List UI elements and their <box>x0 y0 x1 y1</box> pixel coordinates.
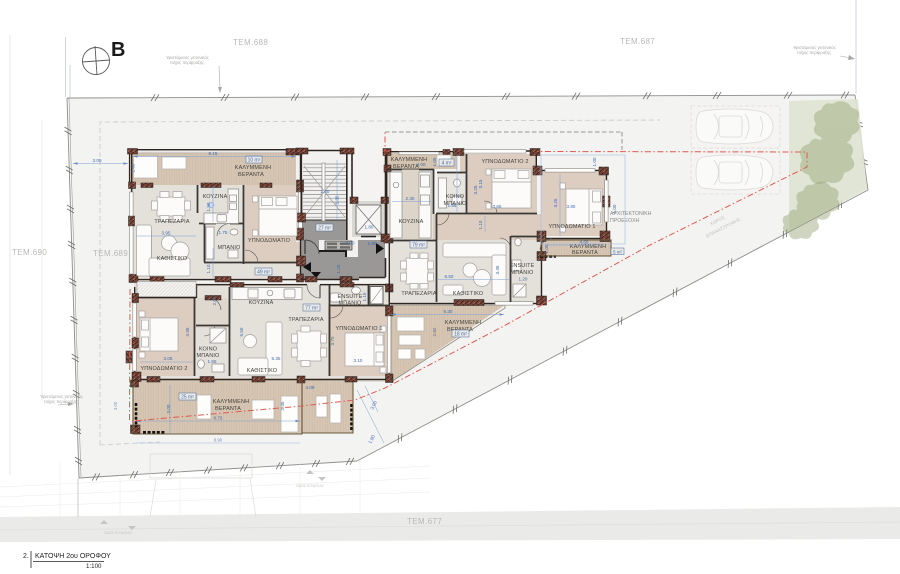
svg-text:3.10: 3.10 <box>354 358 363 363</box>
svg-text:ΤΡΑΠΕΖΑΡΙΑ: ΤΡΑΠΕΖΑΡΙΑ <box>154 219 190 225</box>
svg-text:ΚΑΤΟΨΗ 2ου ΟΡΟΦΟΥ: ΚΑΤΟΨΗ 2ου ΟΡΟΦΟΥ <box>35 553 111 560</box>
svg-text:1.65: 1.65 <box>208 359 217 364</box>
svg-text:ΜΠΑΝΙΟ: ΜΠΑΝΙΟ <box>511 270 534 276</box>
svg-text:8.75: 8.75 <box>214 416 223 421</box>
svg-text:3.80: 3.80 <box>567 204 576 209</box>
svg-text:1.15: 1.15 <box>362 292 367 301</box>
svg-text:18 m²: 18 m² <box>454 332 467 338</box>
svg-text:4.00: 4.00 <box>417 162 426 167</box>
svg-text:3.25: 3.25 <box>553 198 558 207</box>
svg-text:2.: 2. <box>23 553 29 560</box>
svg-text:ΜΠΑΝΙΟ: ΜΠΑΝΙΟ <box>339 301 362 307</box>
svg-text:1.00: 1.00 <box>592 157 597 166</box>
svg-text:ΥΠΝΟΔΩΜΑΤΙΟ 1: ΥΠΝΟΔΩΜΑΤΙΟ 1 <box>335 326 382 332</box>
svg-text:ΤΕΜ.688: ΤΕΜ.688 <box>233 38 268 47</box>
svg-text:3.65: 3.65 <box>493 204 502 209</box>
svg-text:ΤΡΑΠΕΖΑΡΙΑ: ΤΡΑΠΕΖΑΡΙΑ <box>401 291 437 297</box>
svg-text:ΚΑΘΙΣΤΙΚΟ: ΚΑΘΙΣΤΙΚΟ <box>157 256 188 262</box>
svg-text:1.75: 1.75 <box>219 230 228 235</box>
svg-text:ΤΕΜ.689: ΤΕΜ.689 <box>93 249 128 258</box>
svg-text:1.00: 1.00 <box>544 244 549 253</box>
svg-text:5.35: 5.35 <box>272 356 281 361</box>
svg-text:3.00: 3.00 <box>113 401 118 410</box>
svg-text:2.30: 2.30 <box>406 196 415 201</box>
svg-text:1.65: 1.65 <box>448 203 457 208</box>
svg-text:9.15: 9.15 <box>209 151 218 156</box>
svg-text:4.95: 4.95 <box>185 327 190 336</box>
svg-text:2.60: 2.60 <box>321 189 330 194</box>
svg-text:3.00: 3.00 <box>166 404 171 413</box>
svg-text:10 m²: 10 m² <box>248 158 261 164</box>
svg-text:ΚΟΥΖΙΝΑ: ΚΟΥΖΙΝΑ <box>399 219 424 225</box>
svg-text:B: B <box>111 39 125 61</box>
svg-text:ΥΠΝΟΔΩΜΑΤΙΟ 2: ΥΠΝΟΔΩΜΑΤΙΟ 2 <box>481 159 528 165</box>
svg-text:ENSUITE: ENSUITE <box>338 294 363 300</box>
svg-text:1.80: 1.80 <box>365 225 374 230</box>
svg-text:ΤΡΑΠΕΖΑΡΙΑ: ΤΡΑΠΕΖΑΡΙΑ <box>288 317 324 323</box>
svg-text:ΒΕΡΑΝΤΑ: ΒΕΡΑΝΤΑ <box>393 164 419 170</box>
svg-text:ΥΠΝΟΔΩΜΑΤΙΟ: ΥΠΝΟΔΩΜΑΤΙΟ <box>248 238 291 244</box>
svg-text:77 m²: 77 m² <box>305 306 318 312</box>
svg-text:1.90: 1.90 <box>206 202 211 211</box>
svg-text:ΚΟΙΝΟ: ΚΟΙΝΟ <box>446 194 465 200</box>
svg-text:ΚΟΥΖΙΝΑ: ΚΟΥΖΙΝΑ <box>249 300 274 306</box>
svg-text:ΤΕΜ.677: ΤΕΜ.677 <box>407 517 442 526</box>
svg-text:ΟΔΟΣ ΕΓΝΑΤΙΑΣ: ΟΔΟΣ ΕΓΝΑΤΙΑΣ <box>296 484 325 488</box>
svg-text:1:100: 1:100 <box>86 563 102 570</box>
svg-text:4 m²: 4 m² <box>442 161 452 167</box>
svg-text:ΤΕΜ.690: ΤΕΜ.690 <box>12 248 47 257</box>
svg-text:ΒΕΡΑΝΤΑ: ΒΕΡΑΝΤΑ <box>238 172 264 178</box>
svg-text:79 m²: 79 m² <box>412 243 425 249</box>
svg-text:2.45: 2.45 <box>280 401 285 410</box>
svg-text:ΤΕΜ.687: ΤΕΜ.687 <box>620 37 655 46</box>
svg-text:3.70: 3.70 <box>330 336 335 345</box>
svg-text:1.90: 1.90 <box>368 241 377 246</box>
svg-text:27 m²: 27 m² <box>318 226 331 232</box>
svg-text:3.15: 3.15 <box>478 179 483 188</box>
svg-text:6.50: 6.50 <box>445 274 454 279</box>
svg-text:τοίχος περίφραξης: τοίχος περίφραξης <box>44 399 78 404</box>
svg-text:ΒΕΡΑΝΤΑ: ΒΕΡΑΝΤΑ <box>572 250 598 256</box>
svg-text:4.60: 4.60 <box>580 240 589 245</box>
svg-text:3.45: 3.45 <box>495 265 500 274</box>
svg-text:8.90: 8.90 <box>214 438 223 443</box>
svg-text:ΒΕΡΑΝΤΑ: ΒΕΡΑΝΤΑ <box>215 406 241 412</box>
svg-text:ΚΑΛΥΜΜΕΝΗ: ΚΑΛΥΜΜΕΝΗ <box>445 320 481 326</box>
svg-text:0.90: 0.90 <box>346 241 355 246</box>
svg-text:ΠΡΟΕΞΟΧΗ: ΠΡΟΕΞΟΧΗ <box>610 218 640 224</box>
svg-text:ΚΑΛΥΜΜΕΝΗ: ΚΑΛΥΜΜΕΝΗ <box>235 165 271 171</box>
svg-text:1.25: 1.25 <box>336 264 341 273</box>
svg-text:5.35: 5.35 <box>335 195 340 204</box>
svg-text:ΥΠΝΟΔΩΜΑΤΙΟ 2: ΥΠΝΟΔΩΜΑΤΙΟ 2 <box>140 366 187 372</box>
svg-text:ΚΑΘΙΣΤΙΚΟ: ΚΑΘΙΣΤΙΚΟ <box>247 368 278 374</box>
svg-text:3.95: 3.95 <box>162 231 171 236</box>
svg-text:ΜΠΑΝΙΟ: ΜΠΑΝΙΟ <box>218 245 241 251</box>
svg-text:3.25: 3.25 <box>473 185 478 194</box>
svg-text:1.00: 1.00 <box>612 204 617 213</box>
svg-text:2.05: 2.05 <box>212 296 217 305</box>
svg-text:ΚΑΘΙΣΤΙΚΟ: ΚΑΘΙΣΤΙΚΟ <box>453 291 484 297</box>
svg-text:τοίχος περίφραξης: τοίχος περίφραξης <box>797 50 831 55</box>
svg-text:ΚΟΙΝΟ: ΚΟΙΝΟ <box>199 347 218 353</box>
svg-text:3.00: 3.00 <box>93 158 102 163</box>
svg-text:1.10: 1.10 <box>206 264 211 273</box>
svg-text:ΥΠΝΟΔΩΜΑΤΙΟ 1: ΥΠΝΟΔΩΜΑΤΙΟ 1 <box>548 224 595 230</box>
svg-text:4.09: 4.09 <box>306 385 315 390</box>
svg-text:49 m²: 49 m² <box>257 270 270 276</box>
svg-text:1.10: 1.10 <box>478 220 483 229</box>
svg-text:ENSUITE: ENSUITE <box>510 263 535 269</box>
svg-text:ΚΟΥΖΙΝΑ: ΚΟΥΖΙΝΑ <box>203 194 228 200</box>
svg-text:5.50: 5.50 <box>239 327 244 336</box>
svg-text:1.60: 1.60 <box>131 163 136 172</box>
svg-text:ΚΑΛΥΜΜΕΝΗ: ΚΑΛΥΜΜΕΝΗ <box>213 399 249 405</box>
svg-text:τοίχος περίφραξης: τοίχος περίφραξης <box>170 60 204 65</box>
svg-text:5 m²: 5 m² <box>613 249 622 254</box>
svg-text:6.30: 6.30 <box>444 309 453 314</box>
svg-text:2.82: 2.82 <box>432 327 437 336</box>
svg-text:1.00: 1.00 <box>432 157 437 166</box>
svg-text:ΟΔΟΣ ΕΓΝΑΤΙΑΣ: ΟΔΟΣ ΕΓΝΑΤΙΑΣ <box>104 531 133 535</box>
svg-text:1.20: 1.20 <box>519 277 528 282</box>
svg-text:25 m²: 25 m² <box>181 395 194 401</box>
svg-text:3.05: 3.05 <box>164 356 173 361</box>
